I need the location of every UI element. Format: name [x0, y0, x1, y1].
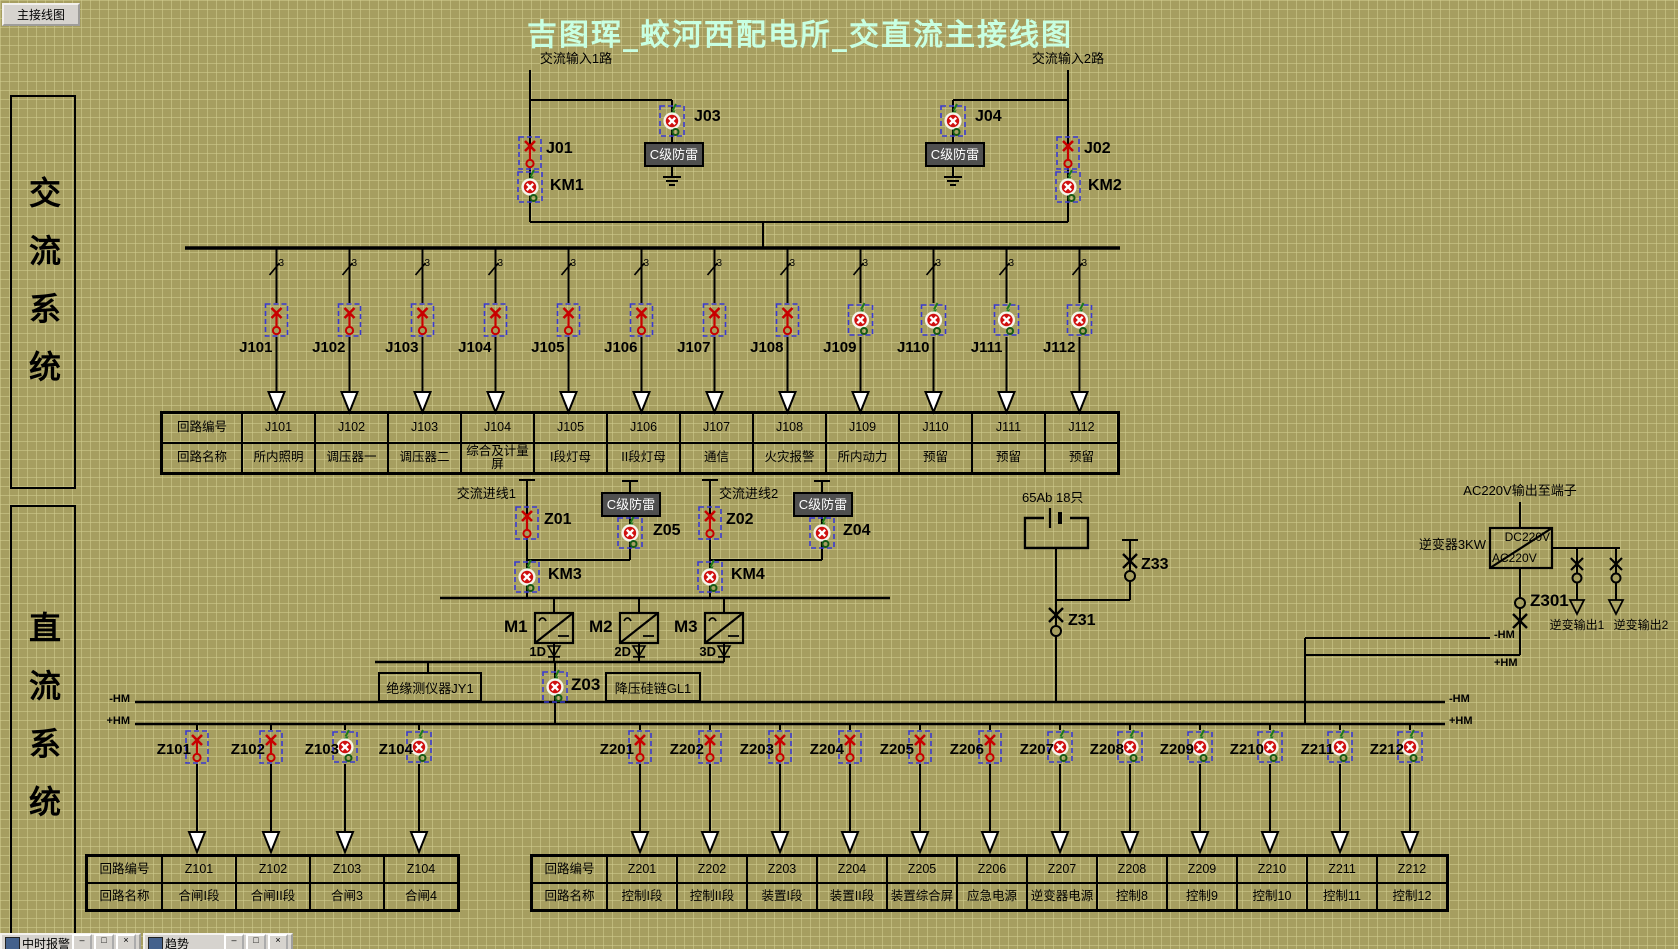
feeder-label-J112: J112 [1030, 340, 1076, 357]
table-cell: 合闸4 [384, 883, 458, 910]
switch-J111[interactable] [995, 303, 1019, 335]
dc-system-label: 直流系统 [20, 611, 66, 843]
feeder-label-Z101: Z101 [145, 742, 191, 759]
device-label-z31: Z31 [1068, 612, 1096, 630]
table-cell: Z212 [1377, 856, 1447, 883]
diode-label-2d: 2D [613, 645, 631, 659]
switch-J104[interactable] [485, 304, 507, 336]
feeder-label-Z201: Z201 [588, 742, 634, 759]
table-cell: Z201 [607, 856, 677, 883]
close-button[interactable]: × [268, 934, 288, 949]
device-label-j04: J04 [975, 108, 1002, 126]
inverter-out1-label: 逆变输出1 [1546, 619, 1608, 632]
table-cell: J110 [899, 413, 972, 443]
phase-count-label: 3 [644, 258, 658, 269]
switch-J107[interactable] [704, 304, 726, 336]
surge-protector-box: C级防雷 [925, 142, 985, 167]
window-icon [5, 937, 20, 949]
device-label-km1: KM1 [550, 177, 584, 195]
feeder-arrow-icon [488, 392, 504, 412]
table-cell: Z103 [310, 856, 384, 883]
table-cell: II段灯母 [607, 443, 680, 473]
switch-J102[interactable] [339, 304, 361, 336]
table-cell: J106 [607, 413, 680, 443]
table-cell: 综合及计量屏 [461, 443, 534, 473]
converter-label-m3: M3 [674, 618, 698, 637]
table-row-header: 回路名称 [532, 883, 607, 910]
feeder-label-J105: J105 [519, 340, 565, 357]
table-cell: 控制12 [1377, 883, 1447, 910]
switch-J112[interactable] [1068, 303, 1092, 335]
feeder-label-J108: J108 [738, 340, 784, 357]
table-cell: Z102 [236, 856, 310, 883]
feeder-label-J102: J102 [300, 340, 346, 357]
table-cell: 调压器二 [388, 443, 461, 473]
battery-label: 65Ab 18只 [1022, 491, 1112, 505]
minimize-button[interactable]: – [72, 934, 92, 949]
diode-label-1d: 1D [528, 645, 546, 659]
device-label-km2: KM2 [1088, 177, 1122, 195]
table-cell: 所内照明 [242, 443, 315, 473]
main-diagram-button[interactable]: 主接线图 [2, 3, 80, 26]
device-label-z03: Z03 [571, 676, 600, 695]
inverter-ac-label: AC220V [1492, 552, 1540, 565]
table-cell: 装置I段 [747, 883, 817, 910]
feeder-arrow-icon [1192, 832, 1208, 852]
silicon-chain-box: 降压硅链GL1 [605, 672, 701, 702]
converter-label-m2: M2 [589, 618, 613, 637]
feeder-arrow-icon [269, 392, 285, 412]
switch-J101[interactable] [266, 304, 288, 336]
table-cell: 火灾报警 [753, 443, 826, 473]
converter-label-m1: M1 [504, 618, 528, 637]
bus-neg-label: -HM [1494, 629, 1515, 641]
table-cell: J108 [753, 413, 826, 443]
switch-J106[interactable] [631, 304, 653, 336]
restore-button[interactable]: □ [246, 934, 266, 949]
table-cell: J102 [315, 413, 388, 443]
bus-pos-label: +HM [96, 715, 130, 727]
feeder-label-J103: J103 [373, 340, 419, 357]
phase-count-label: 3 [936, 258, 950, 269]
feeder-arrow-icon [842, 832, 858, 852]
feeder-label-Z204: Z204 [798, 742, 844, 759]
phase-count-label: 3 [1009, 258, 1023, 269]
phase-count-label: 3 [571, 258, 585, 269]
table-cell: Z207 [1027, 856, 1097, 883]
feeder-label-Z104: Z104 [367, 742, 413, 759]
table-cell: 预留 [1045, 443, 1118, 473]
table-cell: 装置II段 [817, 883, 887, 910]
device-label-z04: Z04 [843, 522, 871, 540]
sidebar-dc-system: 直流系统 [10, 505, 76, 949]
scada-main-diagram-screen: 主接线图 吉图珲_蛟河西配电所_交直流主接线图 交流系统 直流系统 交流输入1路… [0, 0, 1678, 949]
phase-count-label: 3 [863, 258, 877, 269]
feeder-arrow-icon [707, 392, 723, 412]
table-cell: 控制II段 [677, 883, 747, 910]
table-row-header: 回路编号 [162, 413, 242, 443]
feeder-arrow-icon [634, 392, 650, 412]
feeder-arrow-icon [632, 832, 648, 852]
table-cell: J112 [1045, 413, 1118, 443]
feeder-label-Z208: Z208 [1078, 742, 1124, 759]
feeder-arrow-icon [1402, 832, 1418, 852]
table-cell: J111 [972, 413, 1045, 443]
minimize-button[interactable]: – [224, 934, 244, 949]
table-cell: J105 [534, 413, 607, 443]
dc-feeder-table-right: 回路编号Z201Z202Z203Z204Z205Z206Z207Z208Z209… [530, 854, 1449, 912]
feeder-arrow-icon [189, 832, 205, 852]
dc-main-buses [135, 598, 1445, 724]
dc-feeder-table-left: 回路编号Z101Z102Z103Z104回路名称合闸I段合闸II段合闸3合闸4 [85, 854, 460, 912]
ac-input1-label: 交流输入1路 [516, 52, 636, 66]
bus-neg-label: -HM [96, 693, 130, 705]
switch-J103[interactable] [412, 304, 434, 336]
bus-pos-label: +HM [1494, 657, 1518, 669]
feeder-arrow-icon [772, 832, 788, 852]
inverter-output-terminal-label: AC220V输出至端子 [1452, 484, 1588, 498]
feeder-label-Z102: Z102 [219, 742, 265, 759]
feeder-label-Z209: Z209 [1148, 742, 1194, 759]
table-cell: Z205 [887, 856, 957, 883]
table-cell: I段灯母 [534, 443, 607, 473]
phase-count-label: 3 [279, 258, 293, 269]
feeder-arrow-icon [1052, 832, 1068, 852]
device-label-z05: Z05 [653, 522, 681, 540]
surge-protector-box: C级防雷 [644, 142, 704, 167]
feeder-arrow-icon [1262, 832, 1278, 852]
table-cell: J103 [388, 413, 461, 443]
feeder-arrow-icon [415, 392, 431, 412]
table-cell: Z206 [957, 856, 1027, 883]
table-cell: 预留 [972, 443, 1045, 473]
feeder-label-Z212: Z212 [1358, 742, 1404, 759]
ac-input2-label: 交流输入2路 [1008, 52, 1128, 66]
taskbar-window-label: 中时报警 [22, 935, 70, 949]
feeder-label-J106: J106 [592, 340, 638, 357]
table-cell: Z209 [1167, 856, 1237, 883]
table-cell: 调压器一 [315, 443, 388, 473]
battery-icon [1025, 508, 1088, 548]
window-icon [148, 937, 163, 949]
device-label-km3: KM3 [548, 566, 582, 584]
inverter-name-label: 逆变器3KW [1400, 538, 1486, 552]
feeder-arrow-icon [1122, 832, 1138, 852]
feeder-label-Z205: Z205 [868, 742, 914, 759]
surge-protector-box: C级防雷 [601, 492, 661, 517]
table-cell: J109 [826, 413, 899, 443]
ac-system-label: 交流系统 [20, 176, 66, 408]
surge-protector-box: C级防雷 [793, 492, 853, 517]
table-cell: Z210 [1237, 856, 1307, 883]
feeder-label-J104: J104 [446, 340, 492, 357]
diode-label-3d: 3D [698, 645, 716, 659]
table-cell: 控制8 [1097, 883, 1167, 910]
table-cell: 合闸I段 [162, 883, 236, 910]
feeder-label-J107: J107 [665, 340, 711, 357]
table-cell: Z208 [1097, 856, 1167, 883]
table-row-header: 回路编号 [532, 856, 607, 883]
feeder-label-J110: J110 [884, 340, 930, 357]
feeder-label-J101: J101 [227, 340, 273, 357]
feeder-arrow-icon [853, 392, 869, 412]
feeder-arrow-icon [780, 392, 796, 412]
inverter-dc-label: DC220V [1502, 531, 1550, 544]
ac-feeder-table: 回路编号J101J102J103J104J105J106J107J108J109… [160, 411, 1120, 475]
table-cell: 逆变器电源 [1027, 883, 1097, 910]
table-cell: J104 [461, 413, 534, 443]
feeder-arrow-icon [926, 392, 942, 412]
phase-count-label: 3 [425, 258, 439, 269]
switch-J108[interactable] [777, 304, 799, 336]
switch-J109[interactable] [849, 303, 873, 335]
phase-count-label: 3 [498, 258, 512, 269]
device-label-z02: Z02 [726, 511, 754, 529]
restore-button[interactable]: □ [94, 934, 114, 949]
table-cell: Z202 [677, 856, 747, 883]
taskbar-window-label: 趋势 [165, 935, 222, 949]
feeder-label-Z202: Z202 [658, 742, 704, 759]
page-title: 吉图珲_蛟河西配电所_交直流主接线图 [440, 10, 1160, 54]
inverter-out2-label: 逆变输出2 [1608, 619, 1674, 632]
phase-count-label: 3 [352, 258, 366, 269]
feeder-arrow-icon [982, 832, 998, 852]
table-cell: Z101 [162, 856, 236, 883]
feeder-arrow-icon [912, 832, 928, 852]
feeder-arrow-icon [411, 832, 427, 852]
device-label-z01: Z01 [544, 511, 572, 529]
feeder-arrow-icon [263, 832, 279, 852]
feeder-arrow-icon [342, 392, 358, 412]
feeder-arrow-icon [1072, 392, 1088, 412]
feeder-arrow-icon [1332, 832, 1348, 852]
table-row-header: 回路编号 [87, 856, 162, 883]
table-row-header: 回路名称 [162, 443, 242, 473]
table-cell: 应急电源 [957, 883, 1027, 910]
ground-icon [663, 177, 962, 185]
device-label-km4: KM4 [731, 566, 765, 584]
feeder-label-J109: J109 [811, 340, 857, 357]
table-cell: 通信 [680, 443, 753, 473]
table-cell: 所内动力 [826, 443, 899, 473]
table-cell: 控制I段 [607, 883, 677, 910]
taskbar-window-alarm[interactable]: 中时报警 – □ × [0, 933, 141, 949]
dc-inlet1-label: 交流进线1 [432, 487, 516, 501]
phase-count-label: 3 [717, 258, 731, 269]
table-cell: 控制9 [1167, 883, 1237, 910]
close-button[interactable]: × [116, 934, 136, 949]
table-cell: 合闸II段 [236, 883, 310, 910]
feeder-label-Z206: Z206 [938, 742, 984, 759]
table-cell: Z203 [747, 856, 817, 883]
feeder-arrow-icon [702, 832, 718, 852]
feeder-label-Z203: Z203 [728, 742, 774, 759]
phase-count-label: 3 [790, 258, 804, 269]
switch-J110[interactable] [922, 303, 946, 335]
table-cell: 装置综合屏 [887, 883, 957, 910]
table-cell: J101 [242, 413, 315, 443]
table-cell: Z204 [817, 856, 887, 883]
insulation-monitor-box: 绝缘测仪器JY1 [378, 672, 482, 702]
feeder-label-Z103: Z103 [293, 742, 339, 759]
table-row-header: 回路名称 [87, 883, 162, 910]
table-cell: 控制10 [1237, 883, 1307, 910]
table-cell: 合闸3 [310, 883, 384, 910]
feeder-label-Z211: Z211 [1288, 742, 1334, 759]
phase-count-label: 3 [1082, 258, 1096, 269]
sidebar-ac-system: 交流系统 [10, 95, 76, 489]
feeder-arrow-icon [999, 392, 1015, 412]
feeder-label-Z210: Z210 [1218, 742, 1264, 759]
device-label-z33: Z33 [1141, 556, 1169, 574]
table-cell: Z211 [1307, 856, 1377, 883]
table-cell: 控制11 [1307, 883, 1377, 910]
bus-neg-label: -HM [1449, 693, 1470, 705]
table-cell: 预留 [899, 443, 972, 473]
table-cell: J107 [680, 413, 753, 443]
device-label-z301: Z301 [1530, 592, 1569, 611]
bus-pos-label: +HM [1449, 715, 1473, 727]
taskbar-window-trend[interactable]: 趋势 – □ × [143, 933, 293, 949]
feeder-arrow-icon [561, 392, 577, 412]
device-label-j02: J02 [1084, 140, 1111, 158]
device-label-j01: J01 [546, 140, 573, 158]
device-label-j03: J03 [694, 108, 721, 126]
feeder-label-J111: J111 [957, 340, 1003, 357]
switch-J105[interactable] [558, 304, 580, 336]
feeder-arrow-icon [337, 832, 353, 852]
table-cell: Z104 [384, 856, 458, 883]
feeder-label-Z207: Z207 [1008, 742, 1054, 759]
